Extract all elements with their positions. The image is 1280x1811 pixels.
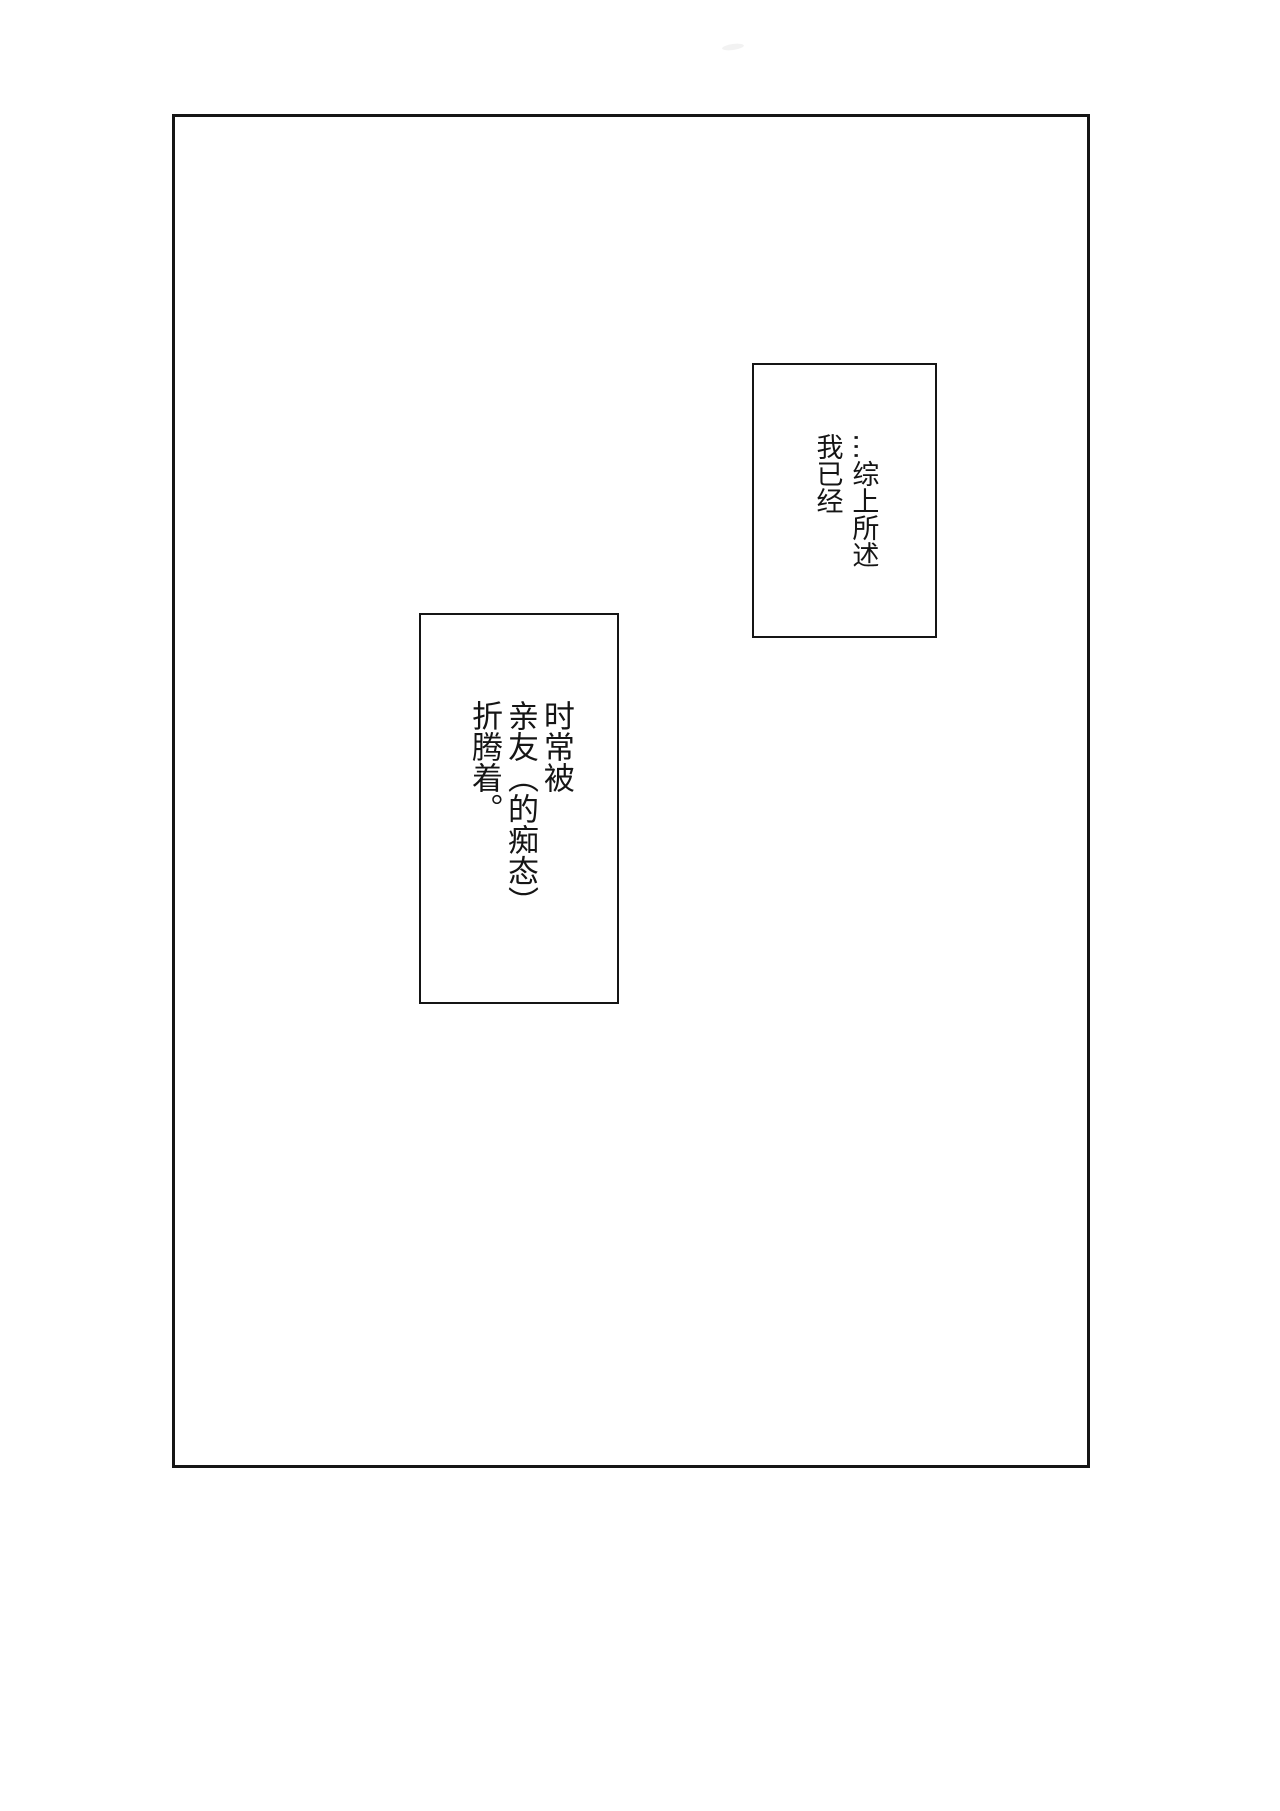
caption-text-middle: 时常被 亲友（的痴态） 折腾着。 xyxy=(465,700,573,917)
scan-speck xyxy=(722,42,745,51)
caption-box-top-right: …综上所述 我已经 xyxy=(752,363,937,638)
panel-border xyxy=(172,114,1090,1468)
caption-box-middle: 时常被 亲友（的痴态） 折腾着。 xyxy=(419,613,619,1004)
caption-text-top-right: …综上所述 我已经 xyxy=(809,433,881,568)
manga-page: …综上所述 我已经 时常被 亲友（的痴态） 折腾着。 xyxy=(0,0,1280,1811)
